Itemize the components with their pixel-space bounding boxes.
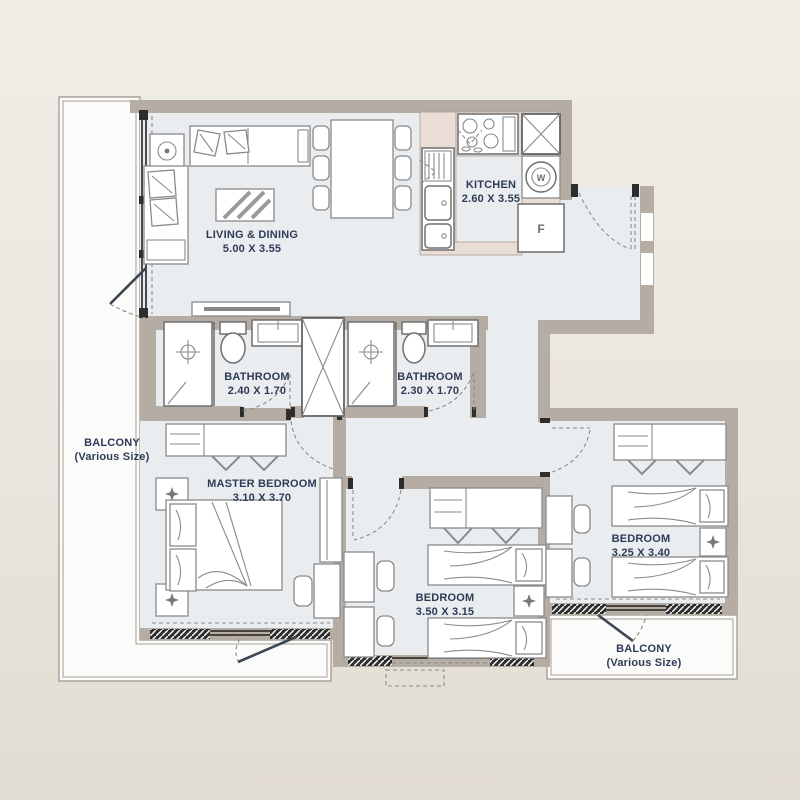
- bedroom3-bed-bottom: [612, 557, 728, 597]
- side-table-lamp: [150, 134, 184, 168]
- fridge-label: F: [537, 222, 544, 236]
- fridge: F: [518, 204, 564, 252]
- bathroom1-dims: 2.40 X 1.70: [228, 385, 286, 397]
- chaise-sofa: [144, 166, 188, 264]
- living-room-label: LIVING & DINING: [206, 229, 298, 241]
- washing-machine: W: [522, 156, 560, 198]
- master-bedroom-dims: 3.10 X 3.70: [233, 492, 291, 504]
- rug: [216, 189, 274, 221]
- sofa: [190, 126, 310, 166]
- kitchen-dims: 2.60 X 3.55: [462, 193, 520, 205]
- balcony-left-dims: (Various Size): [75, 451, 150, 463]
- tv-console: [192, 302, 290, 316]
- bedroom2-nightstand: [514, 586, 544, 616]
- bedroom3-nightstand: [700, 528, 726, 556]
- bathroom2-dims: 2.30 X 1.70: [401, 385, 459, 397]
- washer-label: W: [537, 173, 546, 183]
- floor-plan-drawing: W F: [0, 0, 800, 800]
- kitchen-sink: [422, 148, 454, 250]
- ac-unit-outline: [386, 670, 444, 686]
- kitchen-label: KITCHEN: [466, 179, 516, 191]
- bedroom2-dims: 3.50 X 3.15: [416, 606, 474, 618]
- bedroom2-bed-bottom: [428, 618, 546, 658]
- bedroom2-bed-top: [428, 545, 546, 585]
- living-room-dims: 5.00 X 3.55: [223, 243, 281, 255]
- balcony-right-label: BALCONY: [616, 643, 672, 655]
- floor-plan-page: W F: [0, 0, 800, 800]
- balcony-right-dims: (Various Size): [607, 657, 682, 669]
- bedroom3-dims: 3.25 X 3.40: [612, 547, 670, 559]
- master-bed: [166, 500, 282, 591]
- kitchen-shaft: [522, 114, 560, 154]
- balcony-left-label: BALCONY: [84, 437, 140, 449]
- master-bedroom-label: MASTER BEDROOM: [207, 478, 317, 490]
- bathroom2-label: BATHROOM: [397, 371, 463, 383]
- bathroom1-label: BATHROOM: [224, 371, 290, 383]
- bathroom-shaft: [302, 318, 344, 416]
- bedroom3-bed-top: [612, 486, 728, 526]
- bedroom2-label: BEDROOM: [416, 592, 475, 604]
- bedroom3-label: BEDROOM: [612, 533, 671, 545]
- dining-table: [313, 120, 411, 218]
